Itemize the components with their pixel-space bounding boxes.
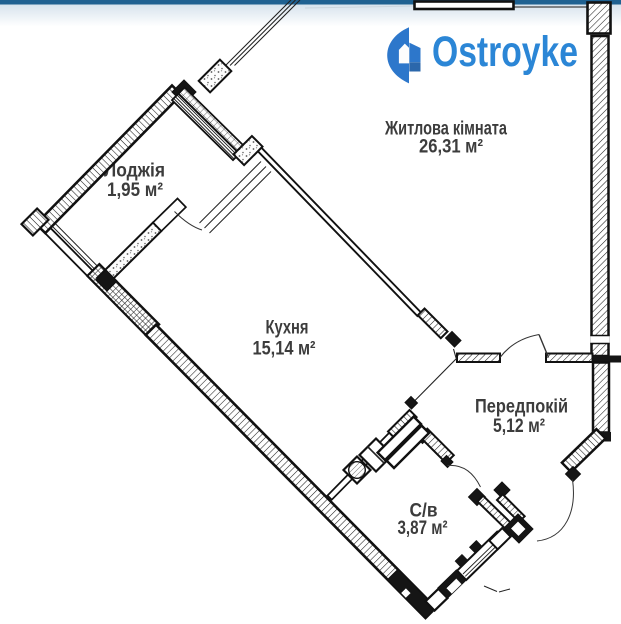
svg-text:Кухня: Кухня: [266, 318, 309, 339]
svg-text:26,31 м²: 26,31 м²: [419, 137, 483, 158]
svg-text:1,95 м²: 1,95 м²: [107, 180, 163, 201]
svg-text:3,87 м²: 3,87 м²: [398, 518, 448, 539]
svg-text:Передпокій: Передпокій: [475, 397, 568, 418]
svg-text:15,14 м²: 15,14 м²: [253, 339, 316, 360]
svg-text:5,12 м²: 5,12 м²: [493, 416, 545, 437]
svg-text:Ostroyke: Ostroyke: [432, 29, 578, 76]
